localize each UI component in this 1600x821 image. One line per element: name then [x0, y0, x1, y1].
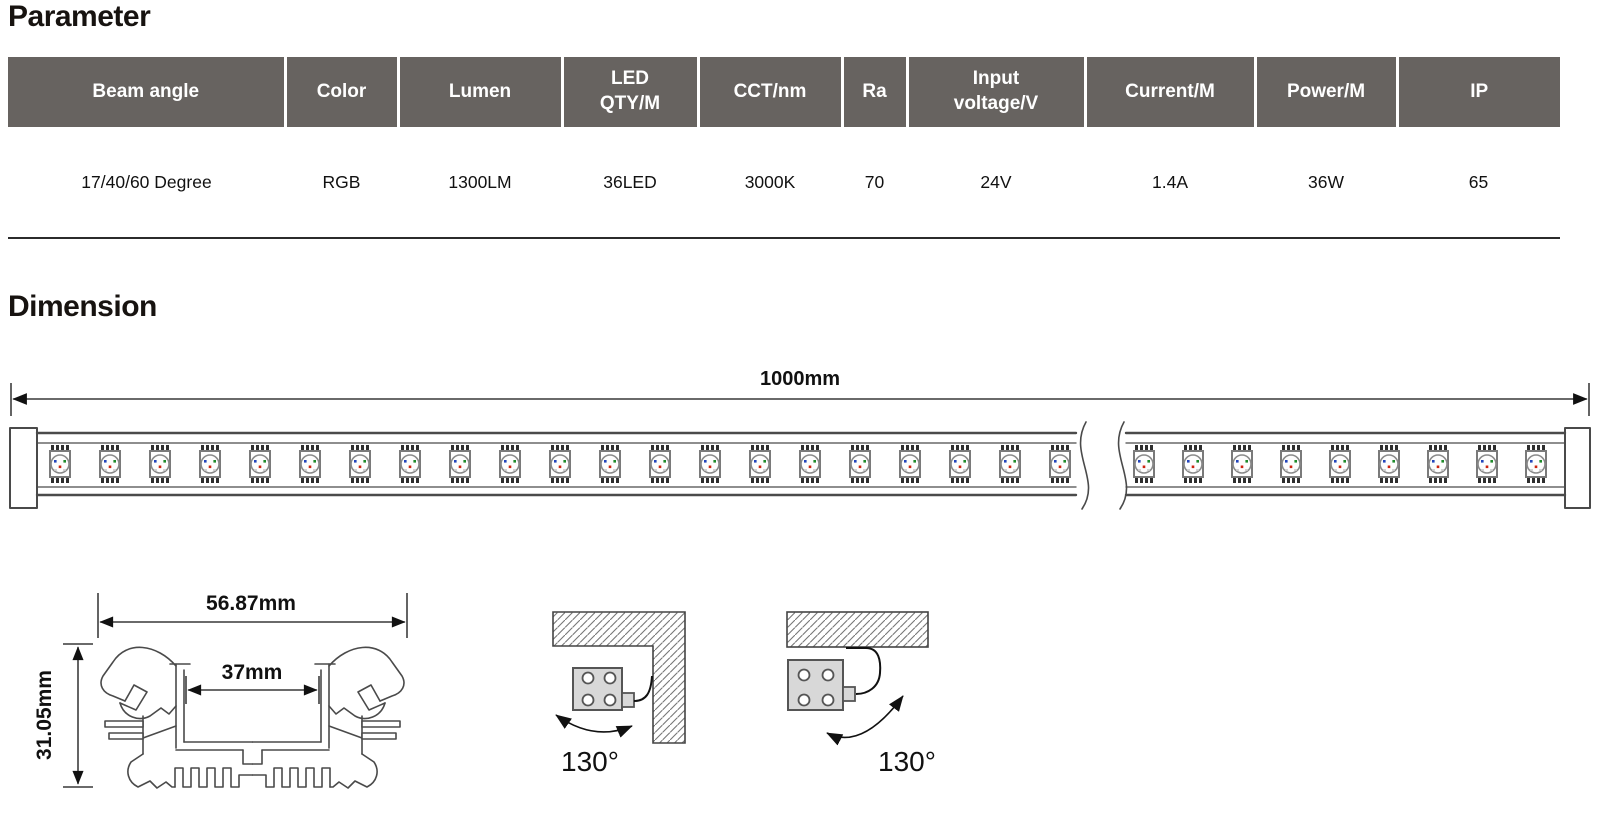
strip-drawing: 1000mm	[8, 358, 1592, 513]
strip-right-endcap	[1565, 428, 1590, 508]
led-module	[1428, 445, 1448, 483]
led-module	[1134, 445, 1154, 483]
spec-sheet-page: Parameter Beam angleColorLumenLED QTY/MC…	[0, 0, 1600, 821]
param-col-4: CCT/nm	[698, 57, 842, 127]
led-module	[500, 445, 520, 483]
param-col-7: Current/M	[1085, 57, 1255, 127]
param-col-6: Input voltage/V	[907, 57, 1085, 127]
strip-left-endcap	[10, 428, 37, 508]
profile-inner-width-label: 37mm	[222, 661, 283, 684]
param-col-8: Power/M	[1255, 57, 1397, 127]
param-value-8: 36W	[1255, 127, 1397, 238]
param-row: 17/40/60 DegreeRGB1300LM36LED3000K7024V1…	[8, 127, 1560, 238]
led-module	[1232, 445, 1252, 483]
led-module	[850, 445, 870, 483]
profile-height-dimension: 31.05mm	[35, 644, 93, 787]
led-module	[1000, 445, 1020, 483]
param-col-2: Lumen	[398, 57, 562, 127]
fixture-body	[788, 660, 843, 710]
profile-drawing: 56.87mm 37mm 31.05mm	[35, 578, 465, 806]
led-module	[1477, 445, 1497, 483]
profile-width-label: 56.87mm	[206, 592, 296, 615]
connector-tab	[622, 693, 634, 707]
parameter-title: Parameter	[8, 0, 150, 34]
profile-inner-width-dimension: 37mm	[186, 661, 319, 704]
param-value-9: 65	[1397, 127, 1560, 238]
led-module	[100, 445, 120, 483]
mounting-diagram-1: 130°	[520, 575, 750, 790]
strip-break-lines	[1081, 422, 1127, 509]
led-row-right	[1134, 445, 1546, 483]
param-col-3: LED QTY/M	[562, 57, 698, 127]
led-module	[550, 445, 570, 483]
led-module	[1183, 445, 1203, 483]
dimension-title: Dimension	[8, 290, 157, 324]
rotation-angle-label: 130°	[878, 746, 936, 777]
rotation-arc-arrow	[556, 715, 632, 732]
led-module	[750, 445, 770, 483]
led-module	[700, 445, 720, 483]
led-module	[1050, 445, 1070, 483]
led-module	[600, 445, 620, 483]
param-col-1: Color	[285, 57, 398, 127]
param-value-4: 3000K	[698, 127, 842, 238]
led-module	[900, 445, 920, 483]
led-module	[400, 445, 420, 483]
param-value-7: 1.4A	[1085, 127, 1255, 238]
led-module	[1330, 445, 1350, 483]
param-col-9: IP	[1397, 57, 1560, 127]
connector-tab	[843, 687, 855, 701]
wire	[634, 676, 652, 701]
led-module	[50, 445, 70, 483]
parameter-table-head: Beam angleColorLumenLED QTY/MCCT/nmRaInp…	[8, 57, 1560, 127]
led-module	[950, 445, 970, 483]
parameter-table: Beam angleColorLumenLED QTY/MCCT/nmRaInp…	[8, 57, 1560, 239]
parameter-table-body: 17/40/60 DegreeRGB1300LM36LED3000K7024V1…	[8, 127, 1560, 238]
led-module	[450, 445, 470, 483]
profile-width-dimension: 56.87mm	[98, 592, 407, 638]
led-module	[1526, 445, 1546, 483]
param-col-0: Beam angle	[8, 57, 285, 127]
param-value-6: 24V	[907, 127, 1085, 238]
mounting-diagram-2: 130°	[750, 575, 980, 790]
param-value-0: 17/40/60 Degree	[8, 127, 285, 238]
led-module	[800, 445, 820, 483]
led-module	[1281, 445, 1301, 483]
ceiling-hatch	[787, 612, 928, 647]
strip-length-dimension: 1000mm	[11, 368, 1589, 416]
param-value-1: RGB	[285, 127, 398, 238]
param-value-2: 1300LM	[398, 127, 562, 238]
led-row-left	[50, 445, 1070, 483]
param-value-3: 36LED	[562, 127, 698, 238]
led-module	[650, 445, 670, 483]
rotation-angle-label: 130°	[561, 746, 619, 777]
profile-height-label: 31.05mm	[35, 670, 56, 760]
strip-length-label: 1000mm	[760, 368, 840, 390]
led-module	[1379, 445, 1399, 483]
led-module	[300, 445, 320, 483]
param-col-5: Ra	[842, 57, 907, 127]
led-module	[250, 445, 270, 483]
led-module	[200, 445, 220, 483]
led-module	[350, 445, 370, 483]
param-value-5: 70	[842, 127, 907, 238]
led-module	[150, 445, 170, 483]
